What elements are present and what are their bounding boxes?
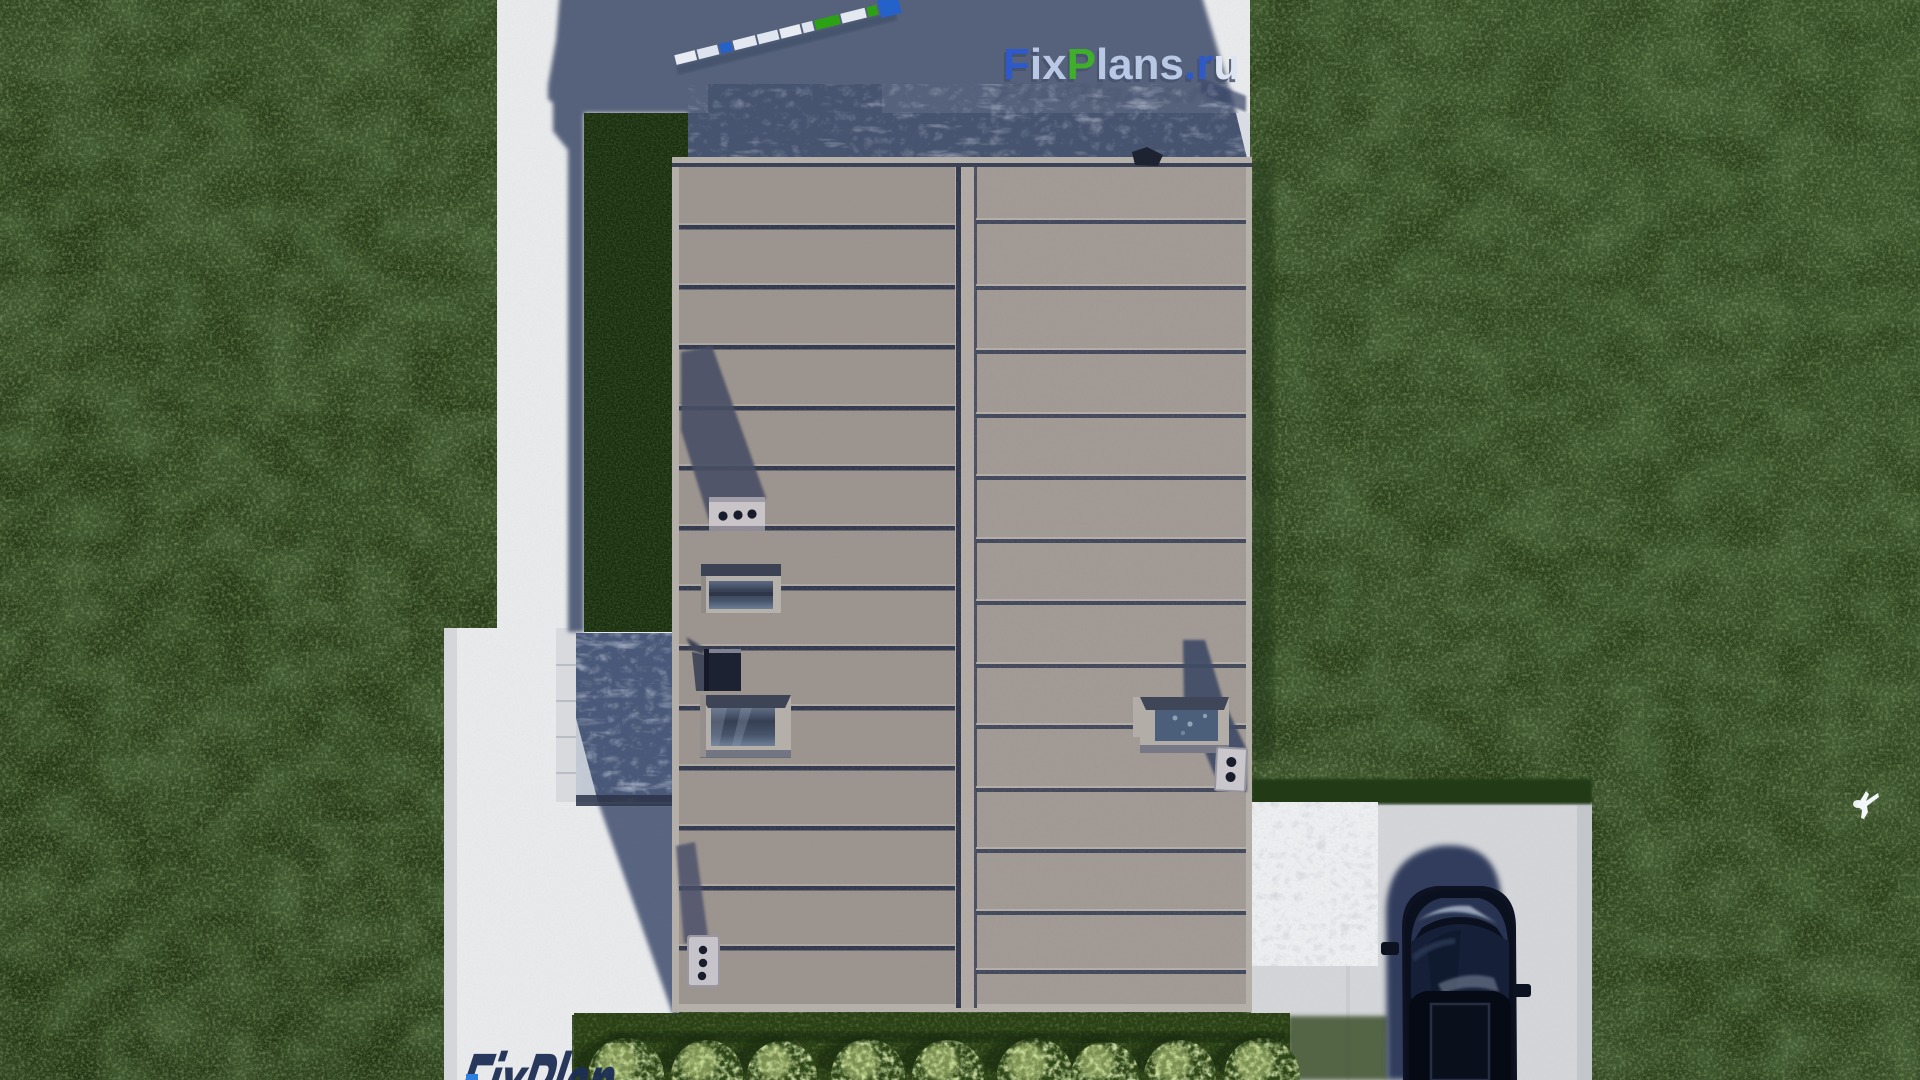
svg-text:FixPlans.ru: FixPlans.ru (1003, 40, 1240, 89)
